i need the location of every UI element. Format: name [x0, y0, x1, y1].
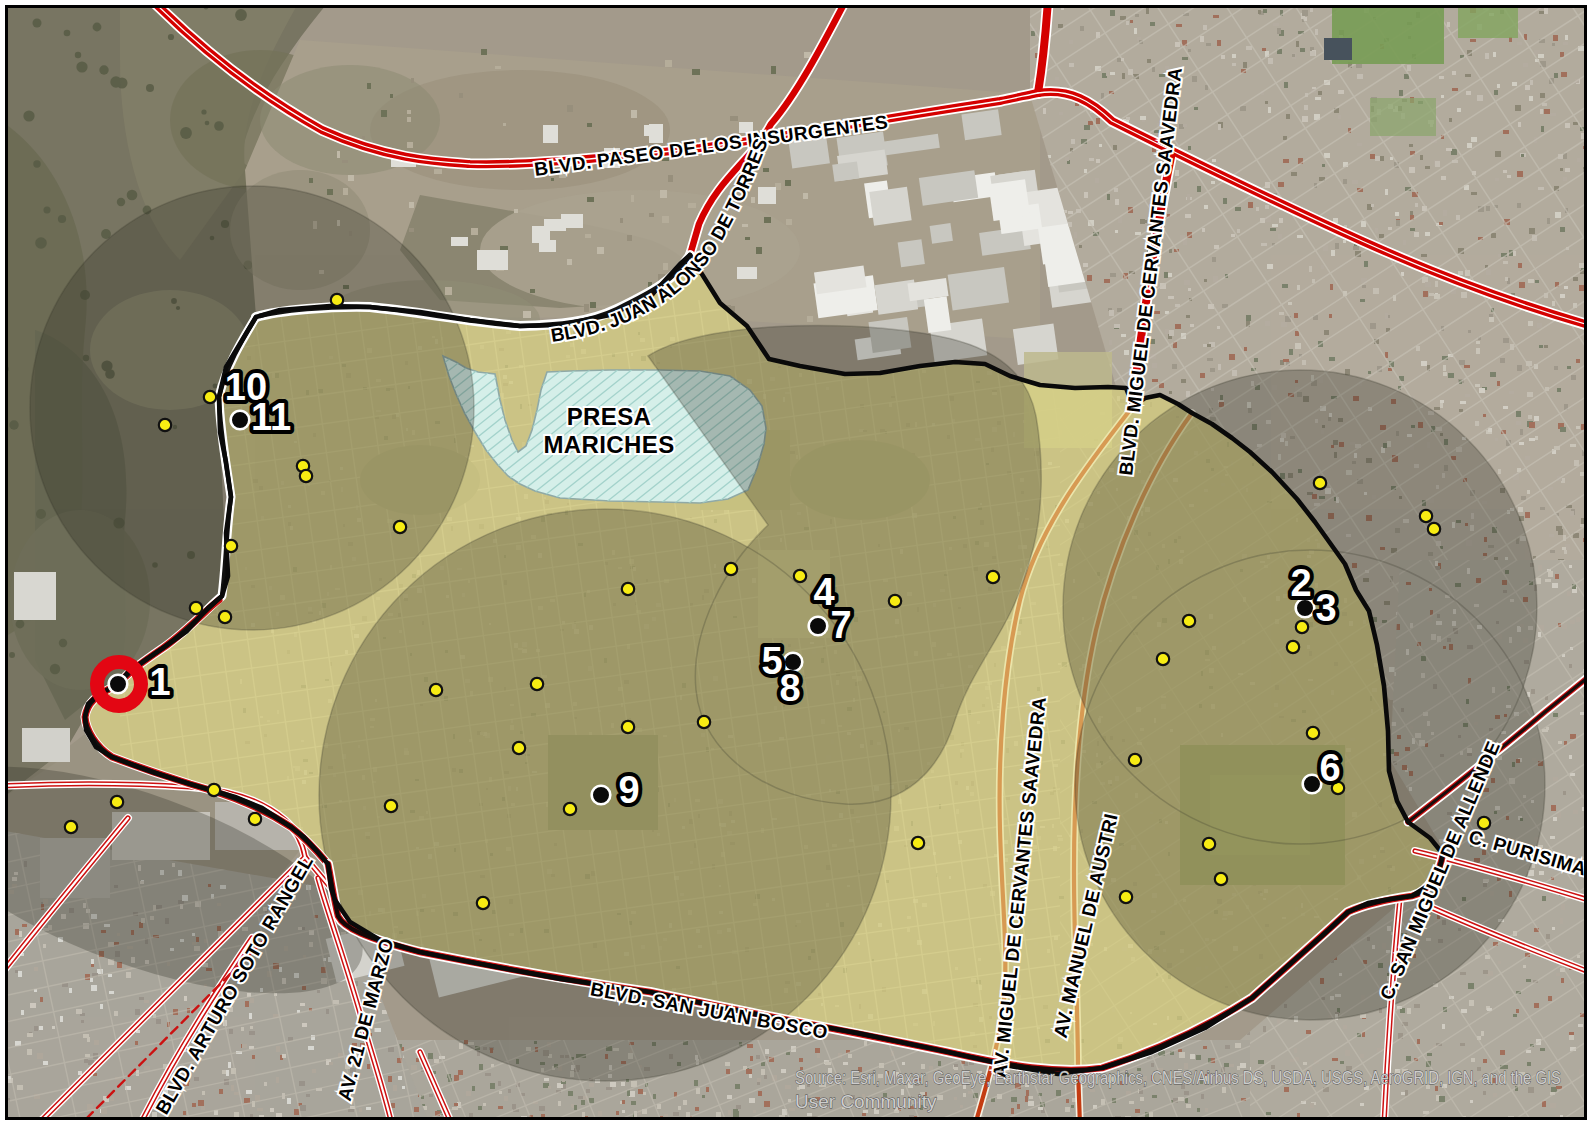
svg-text:User Community: User Community	[795, 1091, 937, 1112]
svg-text:9: 9	[618, 769, 639, 811]
svg-text:8: 8	[779, 667, 800, 709]
svg-text:1: 1	[149, 661, 170, 703]
svg-text:3: 3	[1315, 587, 1336, 629]
svg-text:Source: Esri, Maxar, GeoEye, E: Source: Esri, Maxar, GeoEye, Earthstar G…	[795, 1067, 1561, 1088]
svg-text:6: 6	[1319, 747, 1340, 789]
svg-text:7: 7	[830, 604, 851, 646]
svg-text:PRESA: PRESA	[567, 403, 652, 430]
svg-text:11: 11	[251, 396, 291, 438]
svg-text:MARICHES: MARICHES	[543, 431, 674, 458]
svg-text:2: 2	[1290, 562, 1311, 604]
